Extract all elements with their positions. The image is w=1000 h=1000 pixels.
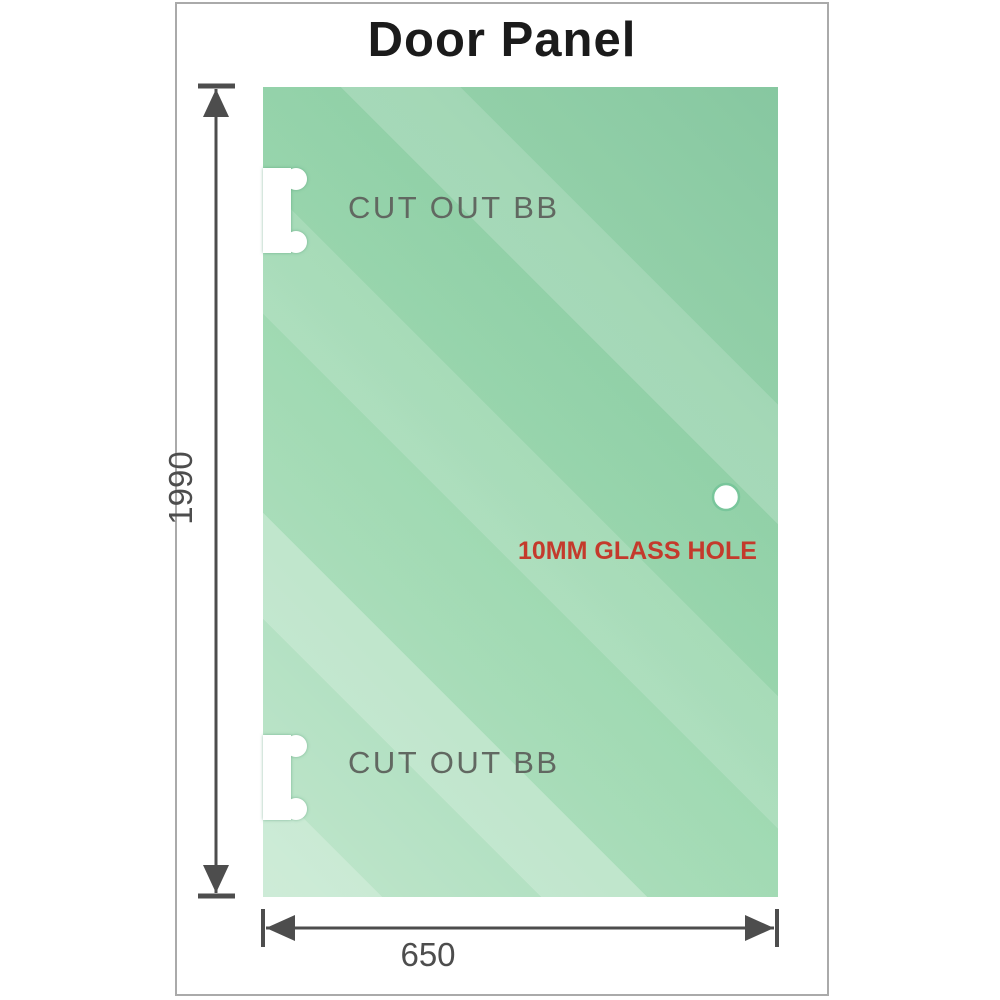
cutout-label-top: CUT OUT BB [348, 190, 560, 226]
glass-hole-label: 10MM GLASS HOLE [518, 537, 757, 566]
cutout-label-bottom: CUT OUT BB [348, 745, 560, 781]
width-dimension-value: 650 [400, 936, 455, 974]
page-title: Door Panel [175, 12, 829, 68]
door-panel-diagram: Door Panel [0, 0, 1000, 1000]
height-dimension-value: 1990 [162, 451, 200, 524]
